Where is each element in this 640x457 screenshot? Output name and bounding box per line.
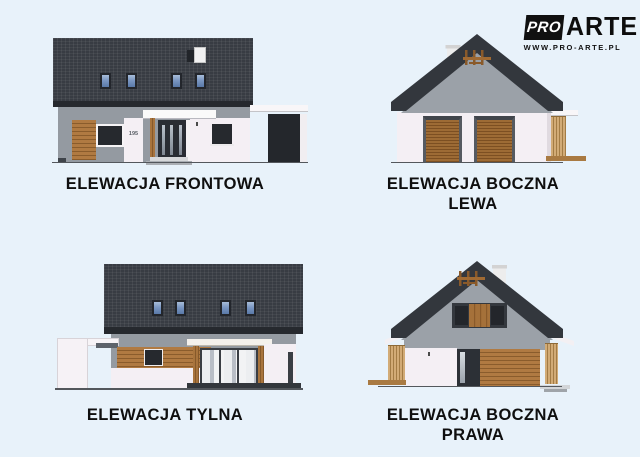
sr-glass-door [457,349,480,386]
sr-slats-left [388,345,405,384]
sr-gable-wood-line [486,304,487,327]
sr-gable-window-right [491,306,504,325]
logo-pro-badge: PRO [524,15,565,40]
side-right-label-line1: ELEWACJA BOCZNA [332,405,614,425]
pro-arte-logo: PRO ARTE WWW.PRO-ARTE.PL [520,13,625,53]
sr-slats-right [545,343,558,384]
side-right-elevation: ELEWACJA BOCZNA PRAWA [0,0,640,457]
sr-wood-cladding [480,349,540,386]
sr-gable-window-left [455,306,468,325]
logo-pro-text: PRO [526,19,562,36]
logo-website: WWW.PRO-ARTE.PL [520,43,625,52]
sr-glass-reflection [460,352,465,383]
sr-gable-wood-line [480,304,481,327]
sr-bracket-beam-lower [463,282,475,284]
side-right-elevation-label: ELEWACJA BOCZNA PRAWA [332,405,614,445]
sr-gable-wood-line [474,304,475,327]
sr-terrace-strip [368,380,406,385]
sr-chimney-cap [492,265,507,269]
sr-bracket-beam [457,277,485,280]
sr-step-lower [544,389,567,392]
sr-wall-lamp-icon [428,352,430,356]
sr-ground-line [378,386,562,388]
side-right-label-line2: PRAWA [332,425,614,445]
logo-arte-text: ARTE [566,15,638,41]
sr-wall [405,348,457,386]
